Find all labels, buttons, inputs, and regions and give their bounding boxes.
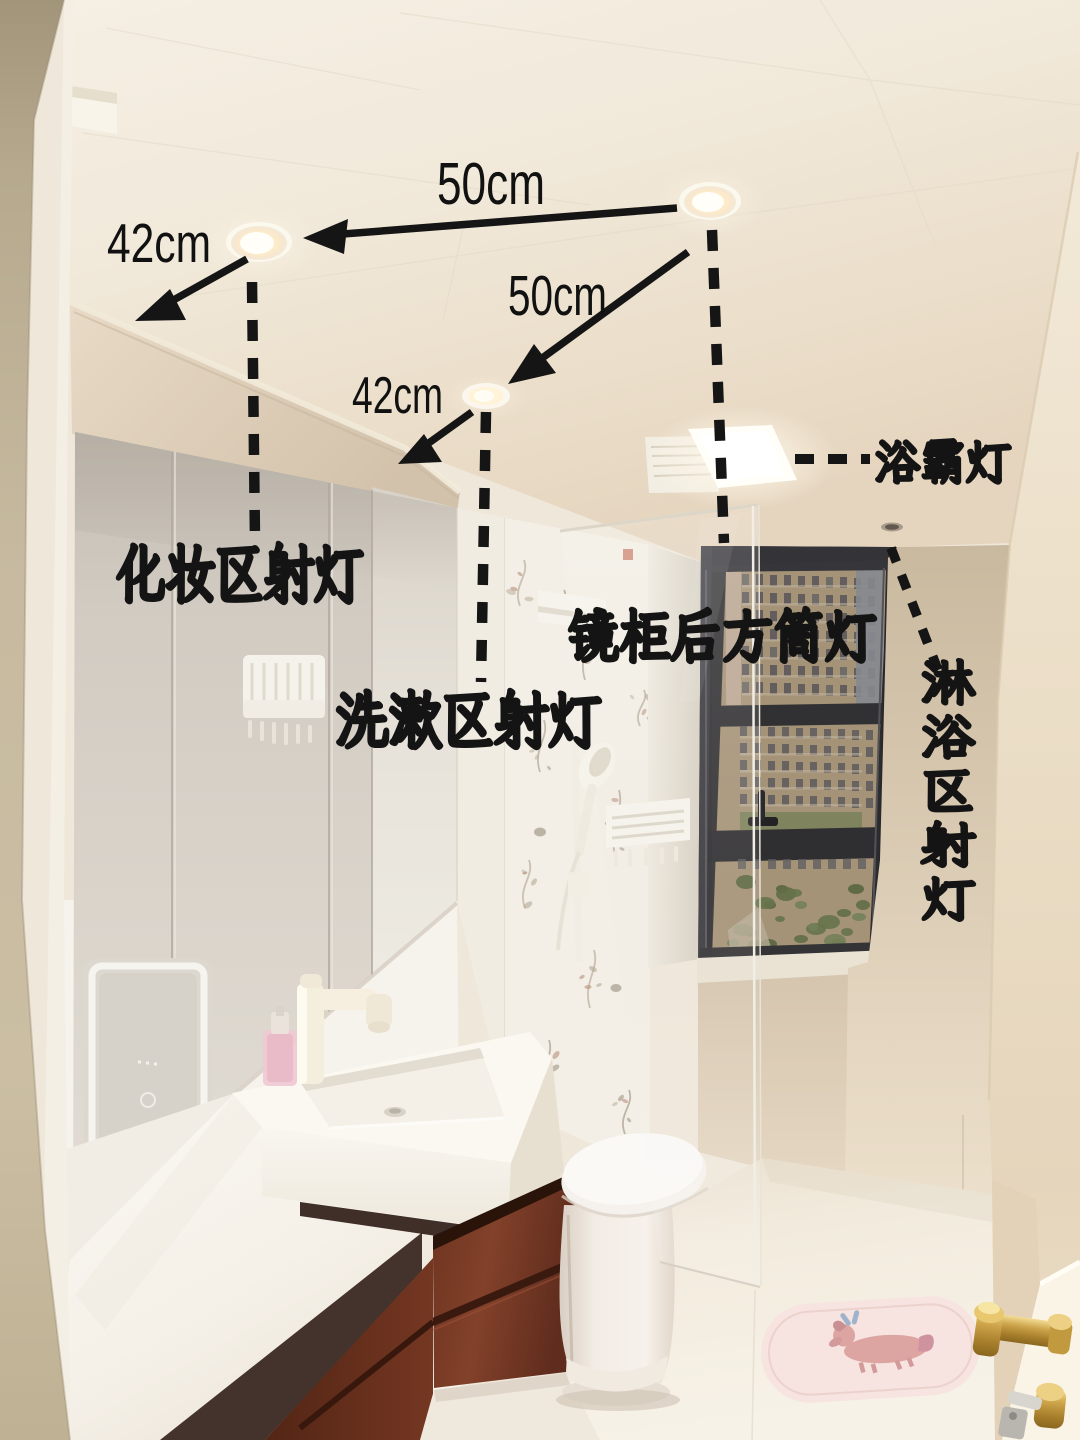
svg-text:50cm: 50cm	[508, 264, 607, 328]
svg-text:42cm: 42cm	[107, 212, 211, 274]
svg-text:50cm: 50cm	[437, 151, 545, 217]
svg-text:42cm: 42cm	[352, 367, 443, 425]
